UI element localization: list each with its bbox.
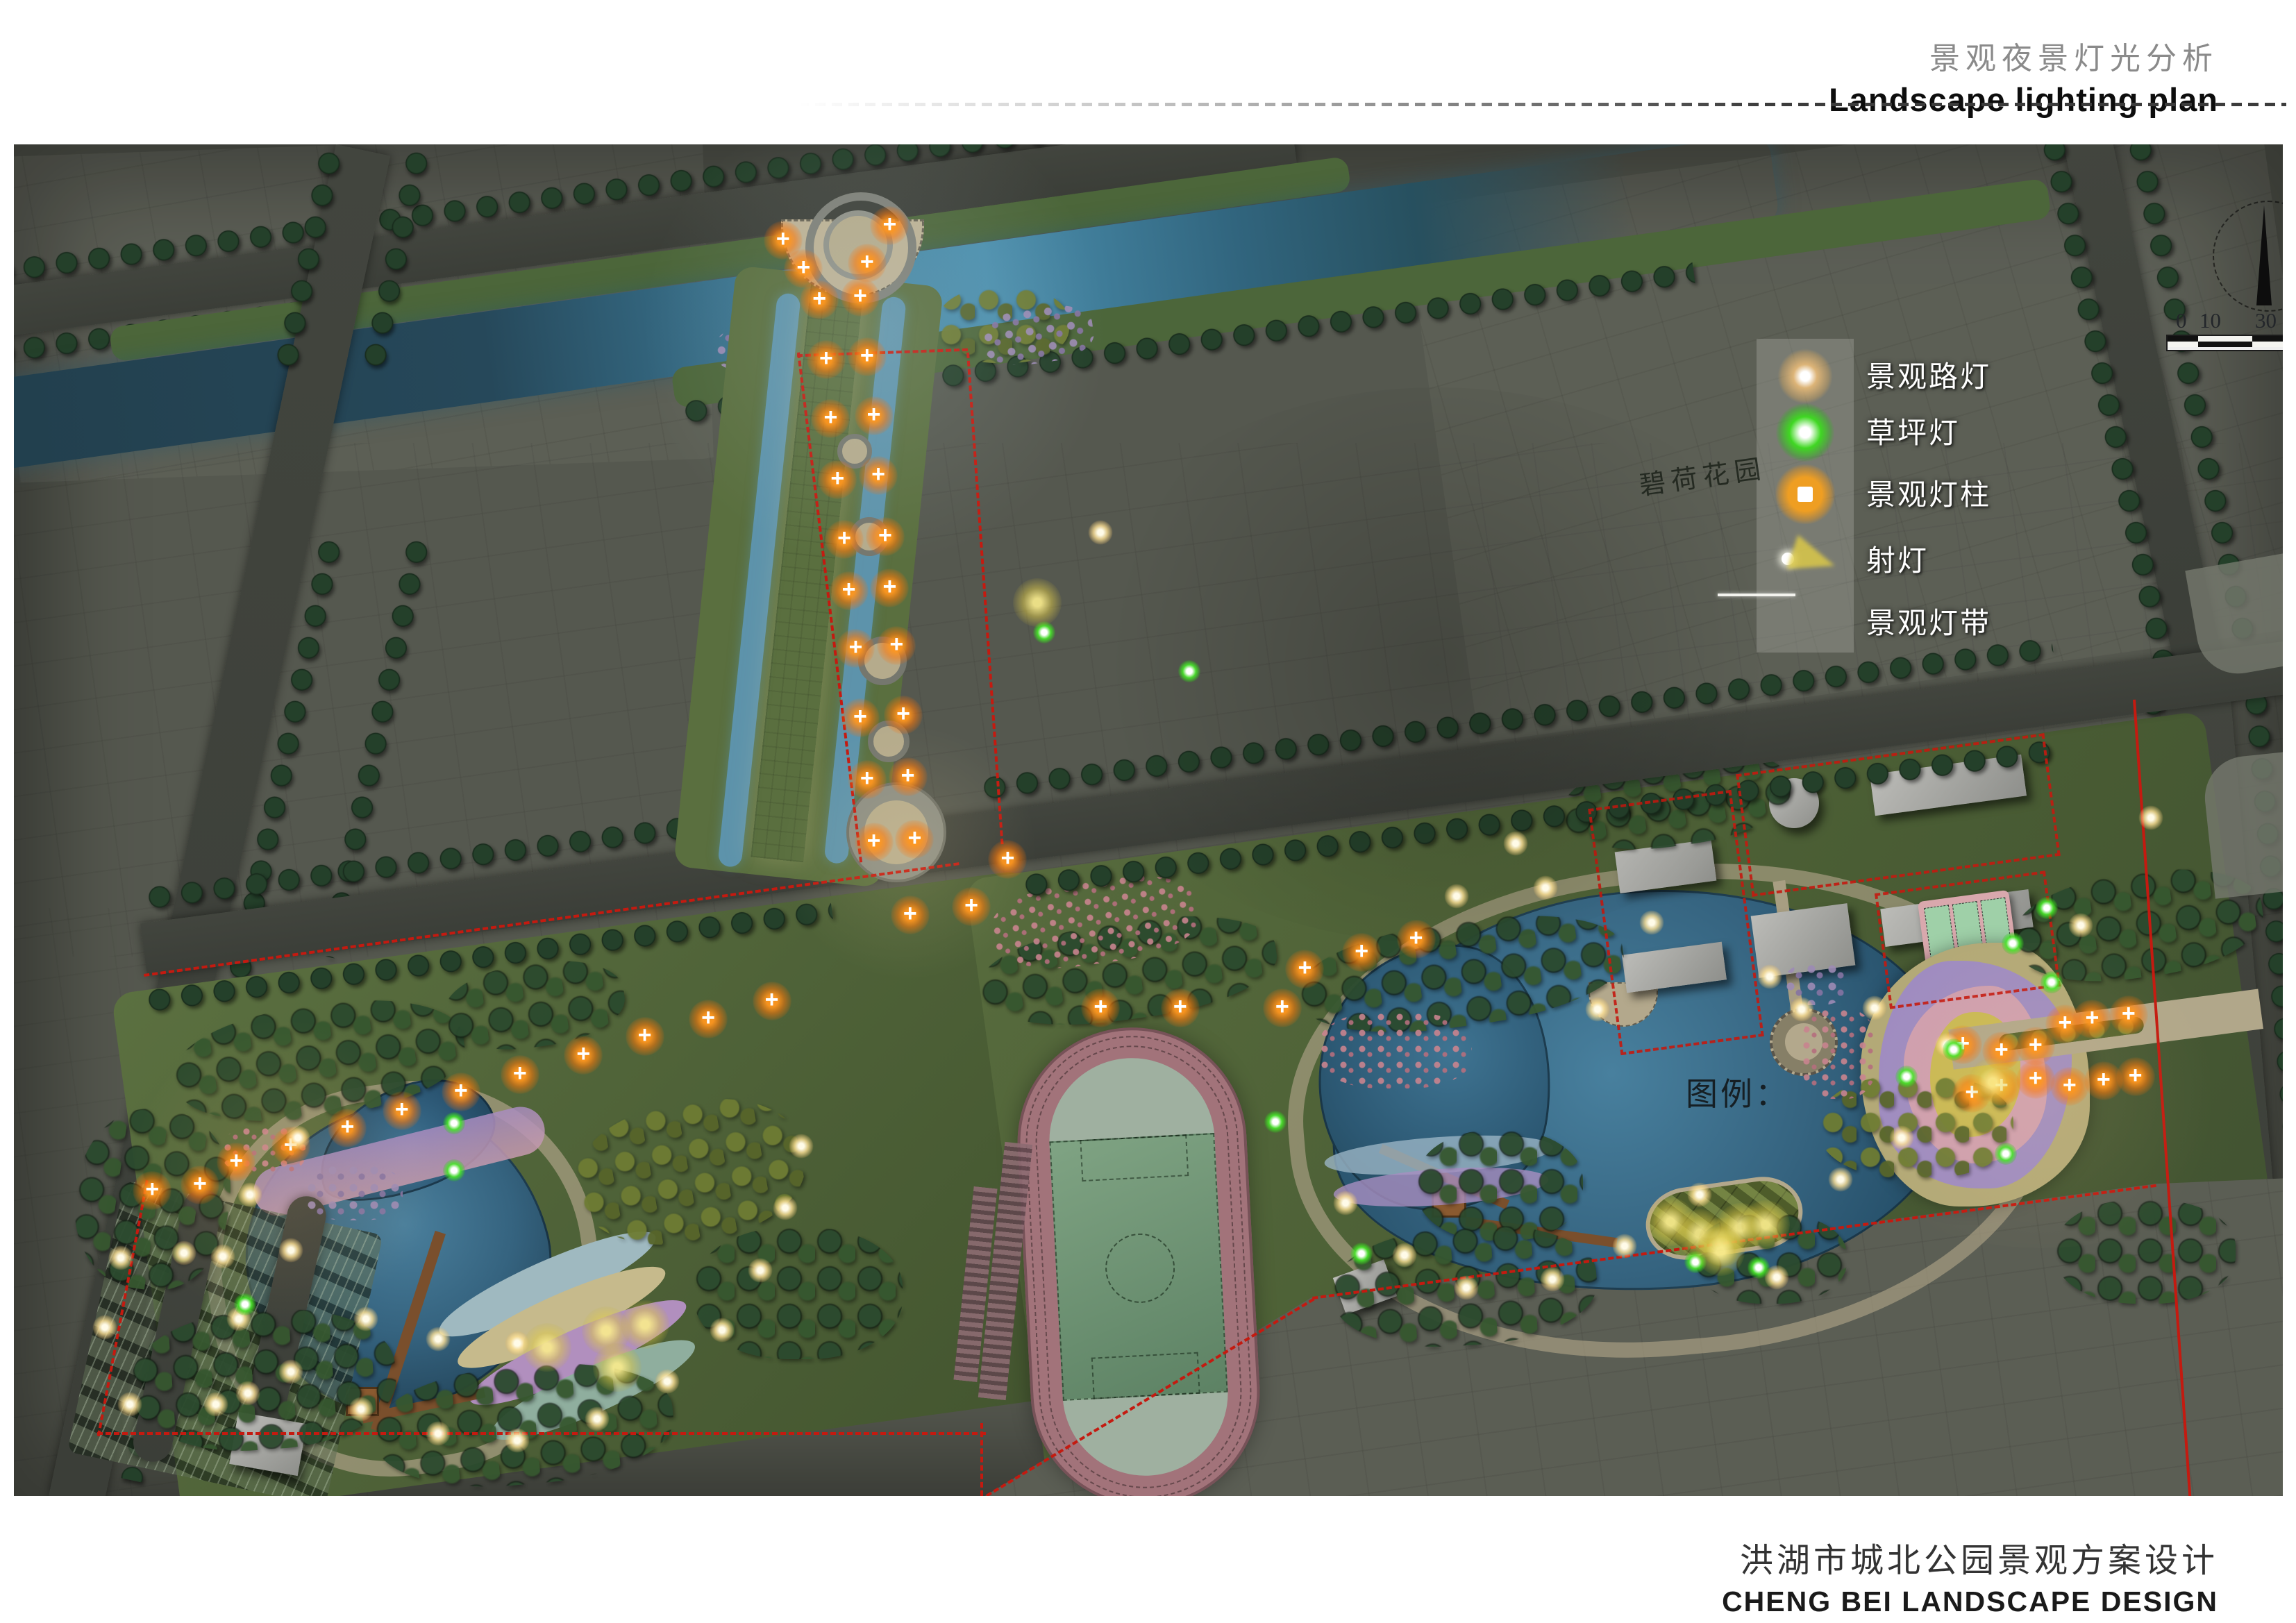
road-light (655, 1369, 680, 1394)
column-light (1342, 933, 1381, 972)
column-light (2072, 1000, 2111, 1038)
road-light (1862, 995, 1887, 1020)
legend-label: 景观灯柱 (1866, 471, 1991, 514)
road-light (210, 1244, 235, 1269)
road-light (1503, 831, 1528, 856)
scale-bar: 0 10 30 (2166, 308, 2283, 351)
road-light (585, 1406, 610, 1431)
lawn-light (1995, 1143, 2017, 1165)
road-light (108, 1245, 133, 1270)
lawn-light (2036, 897, 2058, 919)
road-light (237, 1182, 262, 1207)
column-light (891, 895, 930, 934)
column-light (626, 1017, 664, 1056)
lawn-light (1033, 621, 1055, 644)
column-light (877, 626, 916, 665)
column-light (1982, 1032, 2021, 1070)
road-light (353, 1306, 378, 1331)
lawn-light (443, 1112, 465, 1134)
column-light (181, 1166, 219, 1204)
project-title-cn: 洪湖市城北公园景观方案设计 (1722, 1533, 2218, 1581)
column-light (2116, 1057, 2155, 1096)
road-light (505, 1428, 530, 1453)
spot-light (582, 1306, 630, 1355)
road-light-icon (1777, 348, 1833, 404)
road-light (773, 1195, 798, 1220)
column-light (848, 337, 887, 376)
road-light (1828, 1167, 1853, 1192)
project-title-en: CHENG BEI LANDSCAPE DESIGN (1722, 1586, 2218, 1618)
road-light (710, 1318, 735, 1343)
column-light (217, 1143, 255, 1181)
legend-label: 景观路灯 (1866, 353, 1991, 396)
legend-item-light-column: 景观灯柱 (1757, 466, 2090, 522)
column-light (784, 249, 823, 288)
road-light (226, 1306, 251, 1331)
road-light (285, 1125, 310, 1150)
site-plan-map: 碧荷花园 景观路灯 草坪灯 景观灯柱 射灯 (14, 144, 2283, 1496)
column-light (2016, 1060, 2055, 1099)
spot-light (1968, 1058, 2017, 1107)
column-light (1397, 920, 1436, 959)
column-light (383, 1091, 421, 1130)
road-light (426, 1421, 451, 1446)
column-light (1081, 989, 1120, 1027)
lawn-light (2041, 971, 2063, 993)
spot-light (1716, 1203, 1765, 1252)
light-strip-icon (1718, 594, 1795, 596)
legend-pointer-label: 图例： (1686, 1069, 1790, 1115)
lights-layer (14, 144, 2283, 1496)
road-light (1764, 1265, 1789, 1290)
spot-light (1013, 578, 1062, 627)
page-title-en: Landscape lighting plan (1829, 81, 2218, 119)
column-light (2084, 1061, 2123, 1100)
column-light (889, 757, 928, 796)
road-light (748, 1258, 773, 1283)
column-light (2045, 1004, 2084, 1043)
column-light (841, 698, 880, 737)
legend-item-road-light: 景观路灯 (1757, 348, 2090, 404)
column-light (818, 460, 857, 499)
column-light (1982, 1067, 2021, 1106)
spot-light (1696, 1227, 1745, 1276)
column-light (753, 982, 791, 1020)
road-light (235, 1381, 260, 1406)
column-light (1263, 989, 1302, 1027)
road-light (426, 1327, 451, 1352)
page-title-cn: 景观夜景灯光分析 (1829, 33, 2218, 78)
road-light (1585, 997, 1610, 1022)
road-light (1789, 997, 1814, 1022)
lawn-light (1264, 1111, 1287, 1133)
column-light (952, 887, 991, 926)
column-light (442, 1073, 480, 1111)
scale-label-0: 0 (2176, 308, 2187, 333)
road-light (1889, 1125, 1914, 1150)
road-light (1540, 1267, 1565, 1292)
legend-label: 草坪灯 (1866, 410, 1960, 452)
road-light (171, 1241, 196, 1265)
spot-light (621, 1300, 669, 1349)
lawn-light (1684, 1251, 1707, 1273)
legend-item-lawn-light: 草坪灯 (1757, 405, 2090, 460)
road-light (505, 1331, 530, 1356)
project-footer: 洪湖市城北公园景观方案设计 CHENG BEI LANDSCAPE DESIGN (1722, 1533, 2218, 1618)
road-light (278, 1238, 303, 1263)
column-light (830, 571, 869, 610)
column-light (988, 840, 1027, 879)
scale-label-30: 30 (2255, 308, 2277, 333)
road-light (789, 1134, 814, 1159)
road-light (1088, 520, 1113, 545)
header-dashed-rule (798, 103, 2286, 106)
legend-item-light-strip: 景观灯带 (1757, 595, 2090, 650)
column-light (848, 244, 887, 283)
lawn-light (1943, 1038, 1965, 1061)
road-light (1533, 875, 1558, 900)
column-light (884, 696, 923, 734)
spot-light (1698, 1218, 1747, 1266)
column-light (841, 278, 880, 317)
road-light (1757, 964, 1782, 989)
column-light (564, 1036, 603, 1075)
lawn-light (443, 1159, 465, 1181)
road-light (1639, 910, 1664, 935)
column-light (855, 396, 894, 435)
column-light (895, 820, 934, 859)
road-light (2068, 913, 2093, 938)
column-light (848, 760, 887, 799)
column-light (133, 1171, 171, 1210)
road-light (92, 1315, 117, 1340)
road-light (1687, 1182, 1712, 1207)
column-light (764, 221, 803, 260)
column-light (811, 399, 850, 438)
scale-label-10: 10 (2199, 308, 2221, 333)
lawn-light (1895, 1066, 1918, 1088)
lawn-light (1748, 1256, 1770, 1279)
road-light (1444, 884, 1469, 909)
column-light (870, 206, 909, 245)
lawn-light (1350, 1243, 1373, 1265)
column-light (1952, 1074, 1991, 1113)
road-light (349, 1397, 374, 1422)
spot-light (1675, 1209, 1724, 1258)
legend-label: 景观灯带 (1866, 600, 1991, 642)
lawn-light (2002, 932, 2024, 955)
light-column-icon (1775, 464, 1835, 524)
column-light (800, 280, 839, 319)
scale-bar-graphic (2166, 335, 2283, 351)
north-needle-icon (2256, 205, 2272, 305)
lawn-light (234, 1293, 256, 1315)
road-light (1612, 1234, 1637, 1259)
column-light (501, 1055, 539, 1094)
road-light (1333, 1191, 1358, 1216)
spot-light (1741, 1200, 1790, 1249)
spot-light (593, 1343, 642, 1392)
road-light (2138, 805, 2163, 830)
column-light (1161, 989, 1200, 1027)
column-light (328, 1109, 367, 1147)
column-light (689, 1000, 728, 1038)
column-light (859, 456, 898, 495)
lawn-light (1178, 660, 1200, 682)
road-light (278, 1359, 303, 1384)
column-light (2050, 1067, 2089, 1106)
lawn-light-icon (1776, 403, 1834, 462)
column-light (1943, 1025, 1982, 1064)
road-light (1454, 1275, 1479, 1300)
column-light (1285, 950, 1324, 989)
column-light (866, 517, 905, 556)
column-light (836, 629, 875, 668)
presentation-board: { "header": { "title_cn": "景观夜景灯光分析", "t… (0, 0, 2296, 1623)
road-light (1934, 1032, 1959, 1057)
road-light (203, 1392, 228, 1417)
column-light (2016, 1027, 2055, 1066)
column-light (870, 569, 909, 607)
column-light (807, 340, 846, 379)
spot-light (1646, 1197, 1695, 1246)
road-light (117, 1392, 142, 1417)
column-light (2109, 995, 2148, 1034)
legend-label: 射灯 (1866, 537, 1929, 580)
legend-item-spot-light: 射灯 (1757, 532, 2090, 588)
spot-light (523, 1323, 571, 1372)
column-light (271, 1127, 310, 1166)
road-light (1392, 1243, 1417, 1268)
column-light (855, 823, 894, 861)
column-light (825, 520, 864, 559)
